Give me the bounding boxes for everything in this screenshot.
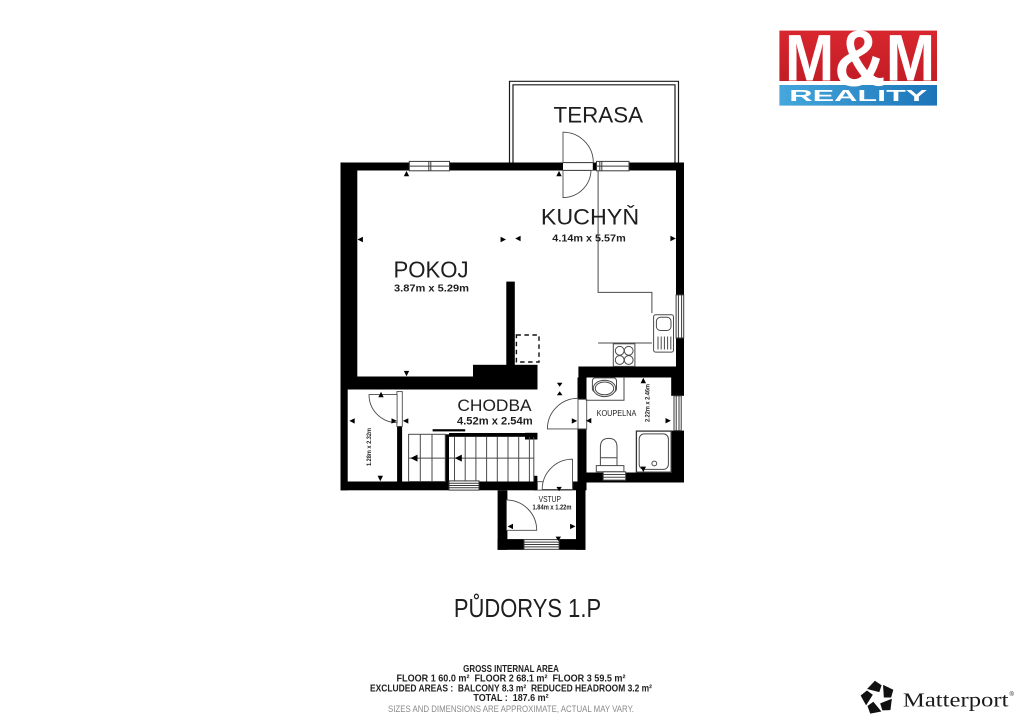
svg-text:PŮDORYS 1.P: PŮDORYS 1.P xyxy=(454,592,601,623)
svg-text:VSTUP: VSTUP xyxy=(539,494,562,504)
svg-text:REALITY: REALITY xyxy=(789,88,928,105)
svg-text:1.28m x 2.32m: 1.28m x 2.32m xyxy=(366,428,373,466)
svg-text:3.87m x 5.29m: 3.87m x 5.29m xyxy=(394,283,469,295)
svg-text:SIZES AND DIMENSIONS ARE APPRO: SIZES AND DIMENSIONS ARE APPROXIMATE, AC… xyxy=(388,704,634,715)
svg-text:2.22m x 2.46m: 2.22m x 2.46m xyxy=(645,384,652,422)
svg-text:®: ® xyxy=(1010,691,1015,698)
svg-text:1.84m x 1.22m: 1.84m x 1.22m xyxy=(533,504,572,511)
svg-text:KOUPELNA: KOUPELNA xyxy=(597,409,637,418)
svg-text:TERASA: TERASA xyxy=(554,103,644,128)
svg-text:KUCHYŇ: KUCHYŇ xyxy=(541,205,639,230)
svg-text:CHODBA: CHODBA xyxy=(457,396,532,415)
svg-text:TOTAL : 187.6 m²: TOTAL : 187.6 m² xyxy=(473,693,549,704)
svg-text:4.14m x 5.57m: 4.14m x 5.57m xyxy=(552,233,625,245)
svg-text:POKOJ: POKOJ xyxy=(393,257,468,283)
svg-text:4.52m x 2.54m: 4.52m x 2.54m xyxy=(457,415,533,427)
svg-text:Matterport: Matterport xyxy=(903,689,1009,711)
